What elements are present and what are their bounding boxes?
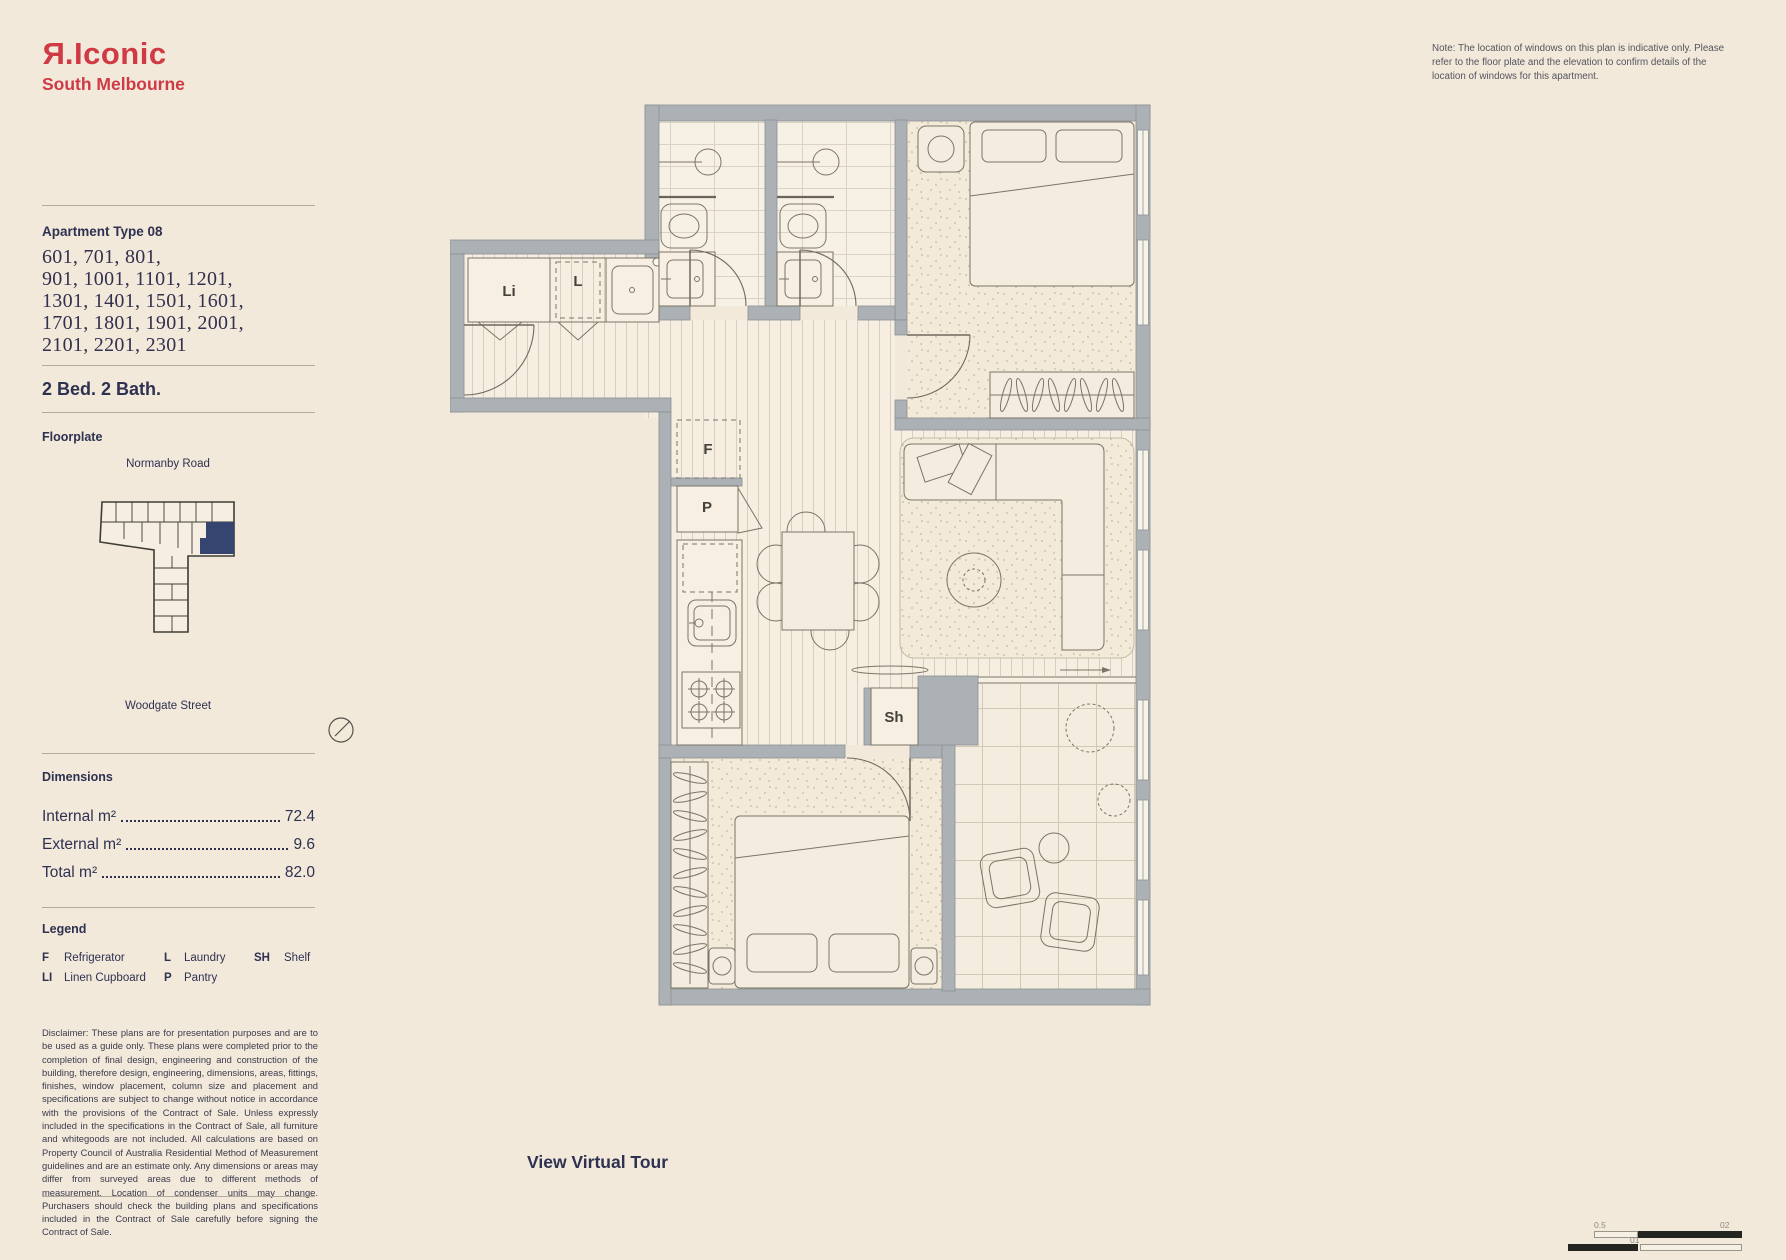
legend-label: Linen Cupboard bbox=[64, 972, 164, 984]
divider bbox=[42, 205, 315, 206]
scale-label-left: 0.5 bbox=[1594, 1220, 1606, 1230]
floorplate-heading: Floorplate bbox=[42, 430, 102, 444]
view-virtual-tour-link[interactable]: View Virtual Tour bbox=[527, 1152, 668, 1173]
compass-icon bbox=[326, 715, 356, 745]
dining-table bbox=[782, 532, 854, 630]
divider bbox=[42, 1196, 315, 1197]
unit-number-list: 601, 701, 801, 901, 1001, 1101, 1201, 13… bbox=[42, 246, 244, 356]
divider bbox=[42, 907, 315, 908]
legend-key: L bbox=[164, 952, 184, 964]
building-outline bbox=[100, 502, 234, 632]
brand-logo-r: R bbox=[42, 36, 65, 72]
windows bbox=[1138, 130, 1149, 975]
legend-label: Pantry bbox=[184, 972, 254, 984]
brand-logo-rest: .Iconic bbox=[65, 36, 167, 71]
pillow bbox=[982, 130, 1046, 162]
legend-label: Shelf bbox=[284, 952, 315, 964]
scale-segment-white bbox=[1640, 1244, 1742, 1251]
dimension-value: 82.0 bbox=[285, 864, 315, 882]
dimension-label: Internal m² bbox=[42, 808, 116, 826]
pillow bbox=[1056, 130, 1122, 162]
unit-line: 1701, 1801, 1901, 2001, bbox=[42, 312, 244, 334]
dimension-value: 72.4 bbox=[285, 808, 315, 826]
road-label-bottom: Woodgate Street bbox=[88, 700, 248, 712]
brand-location: South Melbourne bbox=[42, 74, 185, 95]
dimension-value: 9.6 bbox=[293, 836, 315, 854]
floorplate-minimap bbox=[88, 492, 248, 642]
divider bbox=[42, 412, 315, 413]
disclaimer-text: Disclaimer: These plans are for presenta… bbox=[42, 1026, 318, 1239]
bed-bath-config: 2 Bed. 2 Bath. bbox=[42, 379, 161, 400]
pillow bbox=[829, 934, 899, 972]
fridge-label: F bbox=[703, 441, 712, 458]
legend-key: LI bbox=[42, 972, 64, 984]
legend-table: F Refrigerator L Laundry SH Shelf LI Lin… bbox=[42, 952, 315, 984]
kitchen-bench bbox=[677, 540, 742, 745]
unit-line: 1301, 1401, 1501, 1601, bbox=[42, 290, 244, 312]
dimension-label: External m² bbox=[42, 836, 121, 854]
shelf-label: Sh bbox=[884, 709, 903, 726]
legend-label: Laundry bbox=[184, 952, 254, 964]
scale-label-right: 02 bbox=[1720, 1220, 1729, 1230]
dimension-row: Internal m² 72.4 bbox=[42, 798, 315, 826]
scale-bar: 0.5 02 01 bbox=[1568, 1220, 1746, 1254]
divider bbox=[42, 365, 315, 366]
dot-leader bbox=[121, 820, 280, 822]
road-label-top: Normanby Road bbox=[88, 458, 248, 470]
legend-key: P bbox=[164, 972, 184, 984]
dot-leader bbox=[102, 876, 280, 878]
brand-logo: R.Iconic bbox=[42, 36, 167, 72]
scale-segment-black bbox=[1568, 1244, 1638, 1251]
scale-segment-black bbox=[1638, 1231, 1742, 1238]
laundry-label: L bbox=[573, 273, 582, 290]
legend-key: F bbox=[42, 952, 64, 964]
unit-line: 601, 701, 801, bbox=[42, 246, 244, 268]
dimension-label: Total m² bbox=[42, 864, 97, 882]
hallway-floor bbox=[645, 320, 895, 418]
dimension-row: External m² 9.6 bbox=[42, 826, 315, 854]
legend-heading: Legend bbox=[42, 922, 86, 936]
legend-label: Refrigerator bbox=[64, 952, 164, 964]
pillow bbox=[747, 934, 817, 972]
unit-line: 2101, 2201, 2301 bbox=[42, 334, 244, 356]
linen-label: Li bbox=[502, 283, 515, 300]
window-note: Note: The location of windows on this pl… bbox=[1432, 42, 1740, 85]
dimensions-heading: Dimensions bbox=[42, 770, 113, 784]
legend-key: SH bbox=[254, 952, 284, 964]
unit-line: 901, 1001, 1101, 1201, bbox=[42, 268, 244, 290]
floor-plan: Li L F P Sh bbox=[450, 100, 1160, 1010]
apartment-type-heading: Apartment Type 08 bbox=[42, 224, 163, 239]
dot-leader bbox=[126, 848, 288, 850]
dimensions-table: Internal m² 72.4 External m² 9.6 Total m… bbox=[42, 798, 315, 882]
pantry-label: P bbox=[702, 499, 712, 516]
bedside-table bbox=[918, 126, 964, 172]
dimension-row: Total m² 82.0 bbox=[42, 854, 315, 882]
divider bbox=[42, 753, 315, 754]
